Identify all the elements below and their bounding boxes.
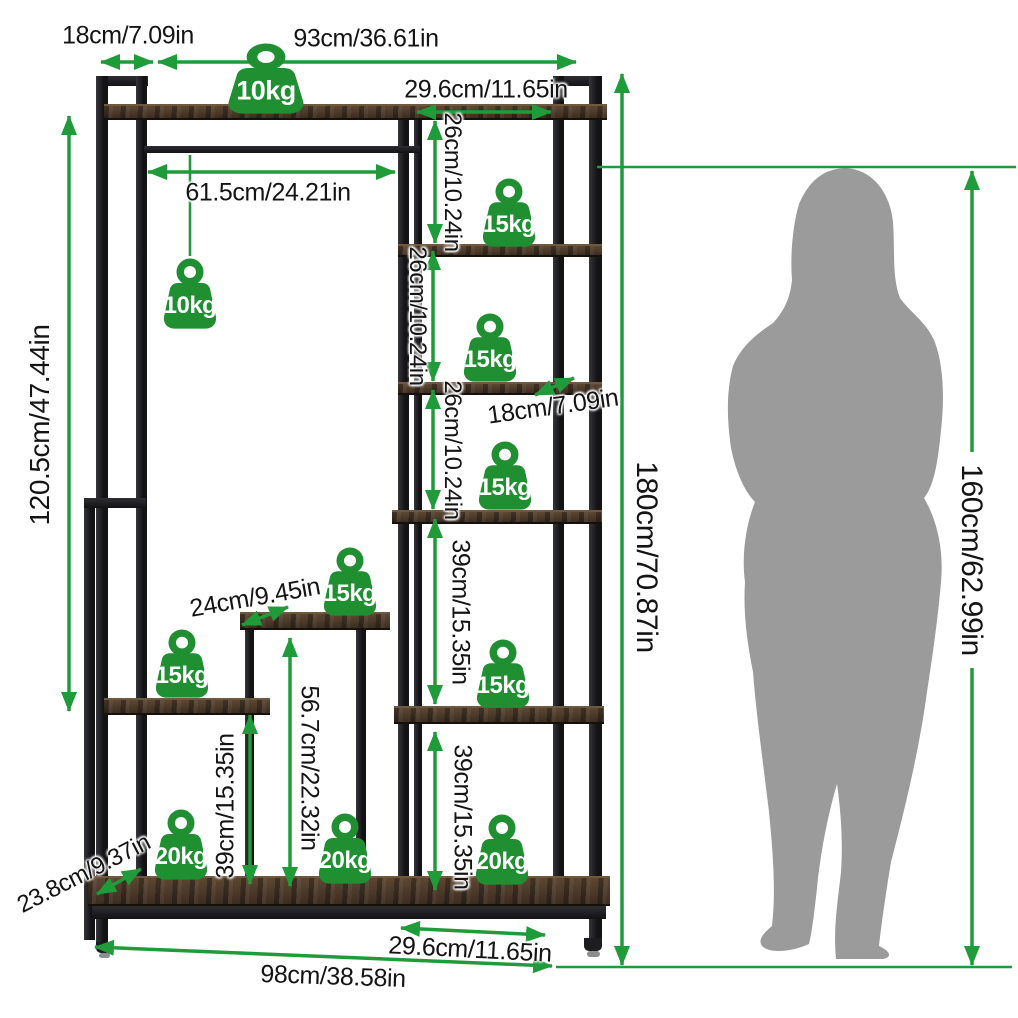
badge-label: 10kg	[220, 75, 312, 106]
badge-label: 20kg	[470, 848, 534, 876]
badge-label: 10kg	[158, 292, 222, 320]
dim-tower-width-top: 29.6cm/11.65in	[404, 76, 568, 105]
dim-shelf-gap-2: 26cm/10.24in	[403, 246, 431, 385]
badge-label: 20kg	[313, 847, 377, 875]
dim-shelf-gap-1: 26cm/10.24in	[438, 112, 466, 251]
hanging-rod	[144, 146, 420, 153]
dim-total-width: 98cm/38.58in	[260, 960, 406, 994]
weight-capacity-badge: 15kg	[458, 312, 522, 384]
weight-capacity-badge: 20kg	[313, 812, 377, 886]
dim-tower-width-bottom: 29.6cm/11.65in	[388, 931, 553, 969]
left-outer-post	[96, 76, 108, 944]
weight-capacity-badge: 15kg	[477, 177, 541, 249]
left-frame-connector	[84, 498, 146, 508]
badge-label: 15kg	[150, 662, 214, 690]
left-mid-shelf	[104, 698, 270, 715]
tower-right-outer-post	[589, 76, 602, 940]
left-foot-pad	[99, 953, 110, 958]
badge-label: 15kg	[458, 346, 522, 374]
badge-label: 15kg	[471, 672, 535, 700]
badge-label: 15kg	[318, 580, 382, 608]
weight-capacity-badge: 20kg	[149, 808, 213, 882]
weight-capacity-badge: 15kg	[473, 440, 537, 512]
weight-capacity-badge: 15kg	[318, 546, 382, 618]
right-foot	[584, 938, 602, 951]
weight-capacity-badge: 20kg	[470, 813, 534, 887]
dim-left-height: 120.5cm/47.44in	[24, 324, 56, 525]
weight-capacity-badge: 15kg	[471, 638, 535, 710]
weight-capacity-badge: 10kg	[158, 257, 222, 331]
tower-right-inner-post	[553, 76, 564, 900]
dim-left-gap: 39cm/15.35in	[212, 733, 241, 878]
dim-top-depth: 18cm/7.09in	[62, 22, 194, 51]
badge-label: 15kg	[477, 211, 541, 239]
weight-capacity-badge: 15kg	[150, 628, 214, 700]
dim-top-width: 93cm/36.61in	[293, 25, 438, 54]
badge-label: 15kg	[473, 474, 537, 502]
dim-person-height: 160cm/62.99in	[954, 464, 988, 656]
base-frame	[92, 906, 606, 919]
weight-capacity-badge: 10kg	[220, 42, 312, 116]
top-shelf	[104, 104, 607, 120]
tower-left-outer-post	[398, 112, 409, 902]
dimension-diagram: 18cm/7.09in 93cm/36.61in 29.6cm/11.65in …	[0, 0, 1018, 1018]
right-foot-pad	[587, 951, 600, 957]
tower-left-inner-post	[414, 112, 422, 902]
dim-rod-width: 61.5cm/24.21in	[185, 179, 350, 208]
left-foot	[96, 942, 112, 953]
tower-shelf-4	[392, 510, 602, 524]
dim-shelf-gap-3: 26cm/10.24in	[438, 380, 466, 519]
badge-label: 20kg	[149, 843, 213, 871]
left-inner-post	[136, 76, 147, 900]
pillar-left-post	[245, 630, 254, 878]
dim-total-height: 180cm/70.87in	[629, 461, 663, 653]
